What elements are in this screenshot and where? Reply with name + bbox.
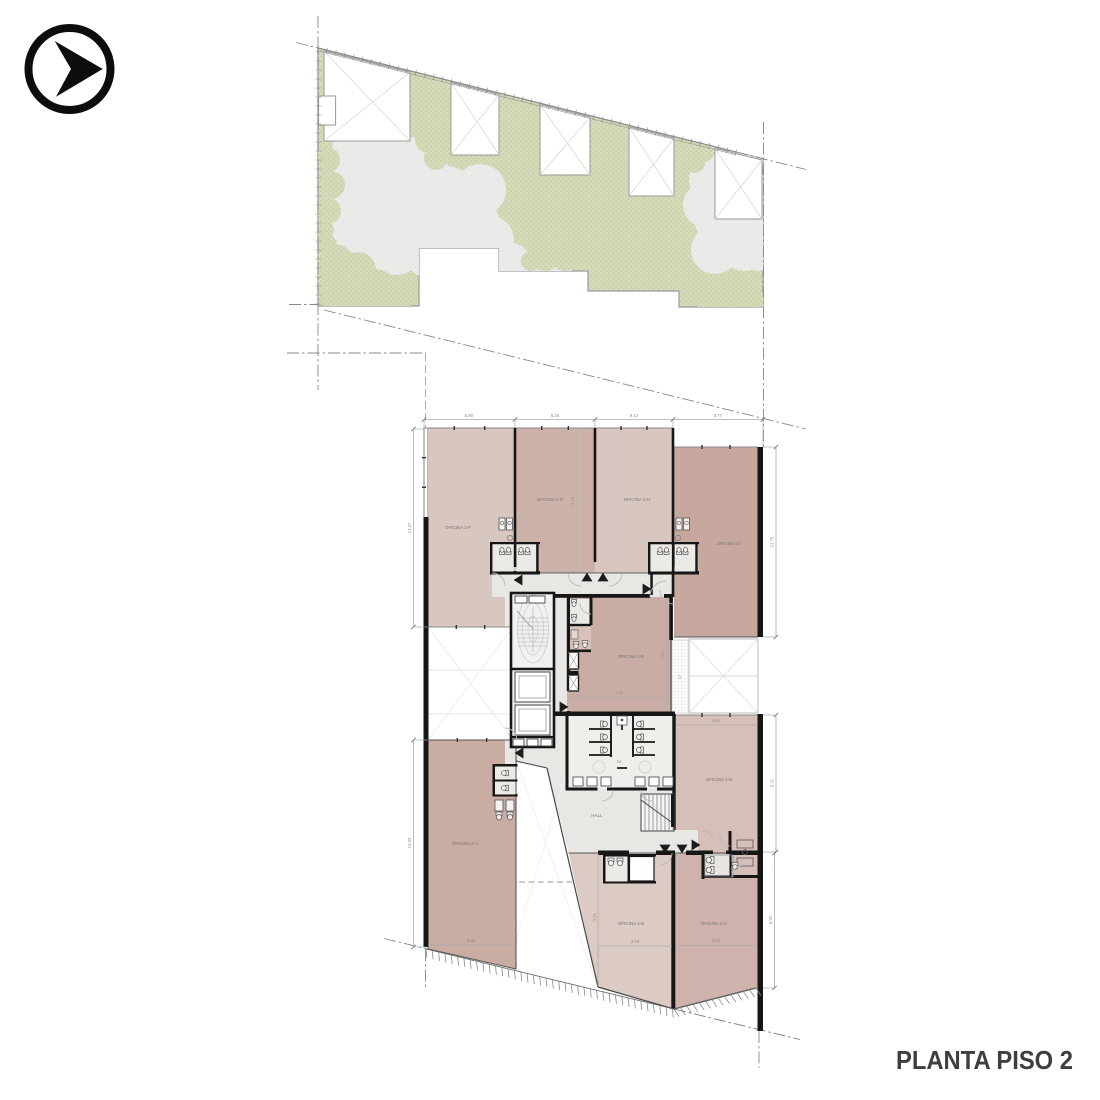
svg-text:HALL: HALL: [591, 813, 603, 818]
svg-text:9.21: 9.21: [770, 778, 775, 787]
svg-text:PLANTA PISO 2: PLANTA PISO 2: [896, 1045, 1073, 1075]
svg-text:3.77: 3.77: [714, 413, 723, 418]
svg-text:OFICINA 2-G: OFICINA 2-G: [537, 497, 564, 502]
svg-text:13.37: 13.37: [407, 522, 412, 533]
svg-text:OFICINA 2-C: OFICINA 2-C: [701, 921, 728, 926]
svg-text:7.81: 7.81: [660, 651, 665, 660]
svg-text:3.52: 3.52: [712, 938, 721, 943]
svg-text:OFICINA 2-E: OFICINA 2-E: [618, 654, 644, 659]
svg-text:8.92: 8.92: [768, 915, 773, 924]
svg-text:OFICINA 2-I: OFICINA 2-I: [717, 541, 742, 546]
svg-text:OFICINA 2-F: OFICINA 2-F: [445, 525, 471, 530]
svg-text:5.80: 5.80: [465, 413, 474, 418]
svg-text:07: 07: [677, 674, 682, 679]
svg-text:OFICINA 2-B: OFICINA 2-B: [618, 921, 644, 926]
svg-text:9.13: 9.13: [630, 413, 639, 418]
svg-text:5.65: 5.65: [712, 718, 721, 723]
svg-text:13.75: 13.75: [770, 536, 775, 547]
svg-text:3.74: 3.74: [631, 939, 640, 944]
svg-text:13.93: 13.93: [407, 837, 412, 848]
svg-text:06: 06: [617, 759, 622, 764]
svg-text:OFICINA 2-H: OFICINA 2-H: [624, 497, 651, 502]
svg-text:5.25: 5.25: [551, 413, 560, 418]
svg-text:7.00: 7.00: [615, 690, 624, 695]
svg-text:9.75: 9.75: [570, 496, 575, 505]
svg-text:9.11: 9.11: [592, 912, 597, 920]
svg-text:OFICINA 2-D: OFICINA 2-D: [706, 777, 733, 782]
svg-text:5.68: 5.68: [467, 938, 476, 943]
svg-text:OFICINA 2-A: OFICINA 2-A: [452, 841, 478, 846]
